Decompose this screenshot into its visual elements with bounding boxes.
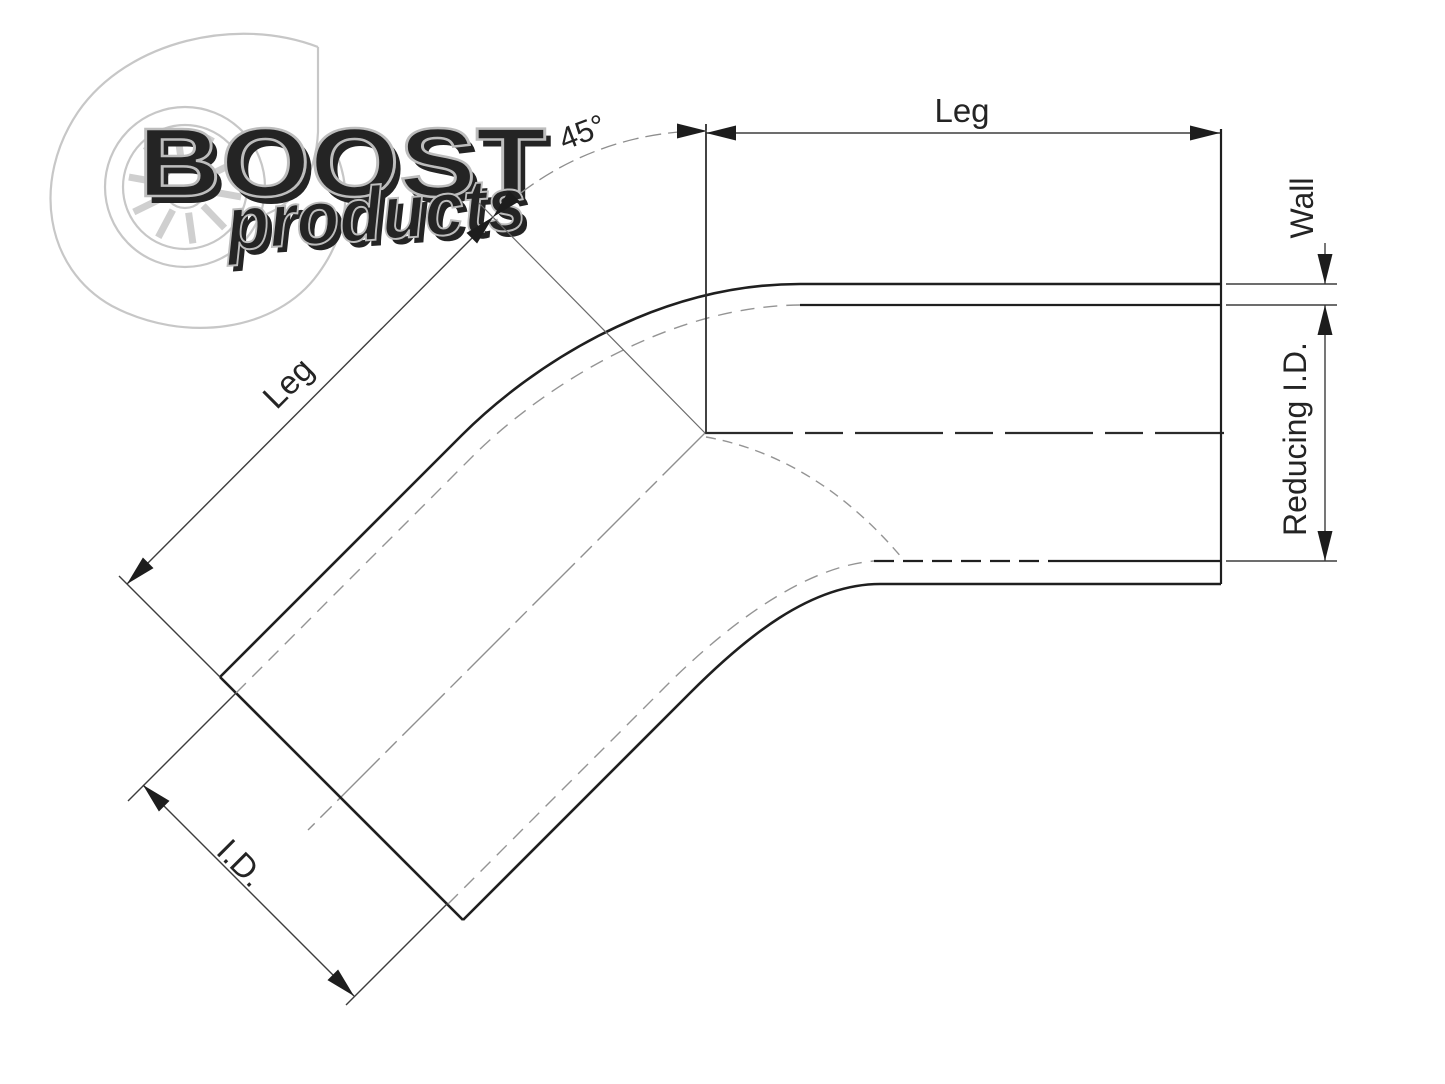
leg-diagonal-label: Leg xyxy=(255,350,320,415)
leg-top-arrow-left xyxy=(706,126,736,141)
id-extension-lower xyxy=(346,903,448,1005)
inner-top-hidden xyxy=(236,305,800,693)
angle-arc-arrow-top xyxy=(677,124,707,139)
id-label: I.D. xyxy=(210,832,272,894)
vertex-diagonal-extension xyxy=(479,203,705,433)
wall-arrow-bottom xyxy=(1318,305,1333,335)
elbow-diagram-canvas: BOOST BOOST products products xyxy=(0,0,1445,1084)
reducing-cone-hidden xyxy=(706,437,902,558)
leg-top-label: Leg xyxy=(934,92,989,129)
leg-top-arrow-right xyxy=(1190,126,1220,141)
boost-products-logo: BOOST BOOST products products xyxy=(51,34,552,328)
reducing-id-label: Reducing I.D. xyxy=(1277,342,1313,536)
reducing-id-arrow-bottom xyxy=(1318,531,1333,561)
wall-label: Wall xyxy=(1284,177,1320,238)
leg-diagonal-extension-lower xyxy=(119,576,220,677)
id-extension-upper xyxy=(128,693,236,801)
inner-bottom-hidden xyxy=(448,561,874,904)
leg-diagonal-dimension-line xyxy=(127,217,493,584)
outer-top-edge xyxy=(220,284,1221,677)
drawing-page: BOOST BOOST products products xyxy=(0,0,1445,1084)
diagonal-centerline xyxy=(308,433,705,830)
outer-bottom-edge xyxy=(463,584,1221,920)
wall-arrow-top xyxy=(1318,254,1333,284)
center-lines xyxy=(308,433,1224,830)
angle-label: 45° xyxy=(554,107,610,156)
